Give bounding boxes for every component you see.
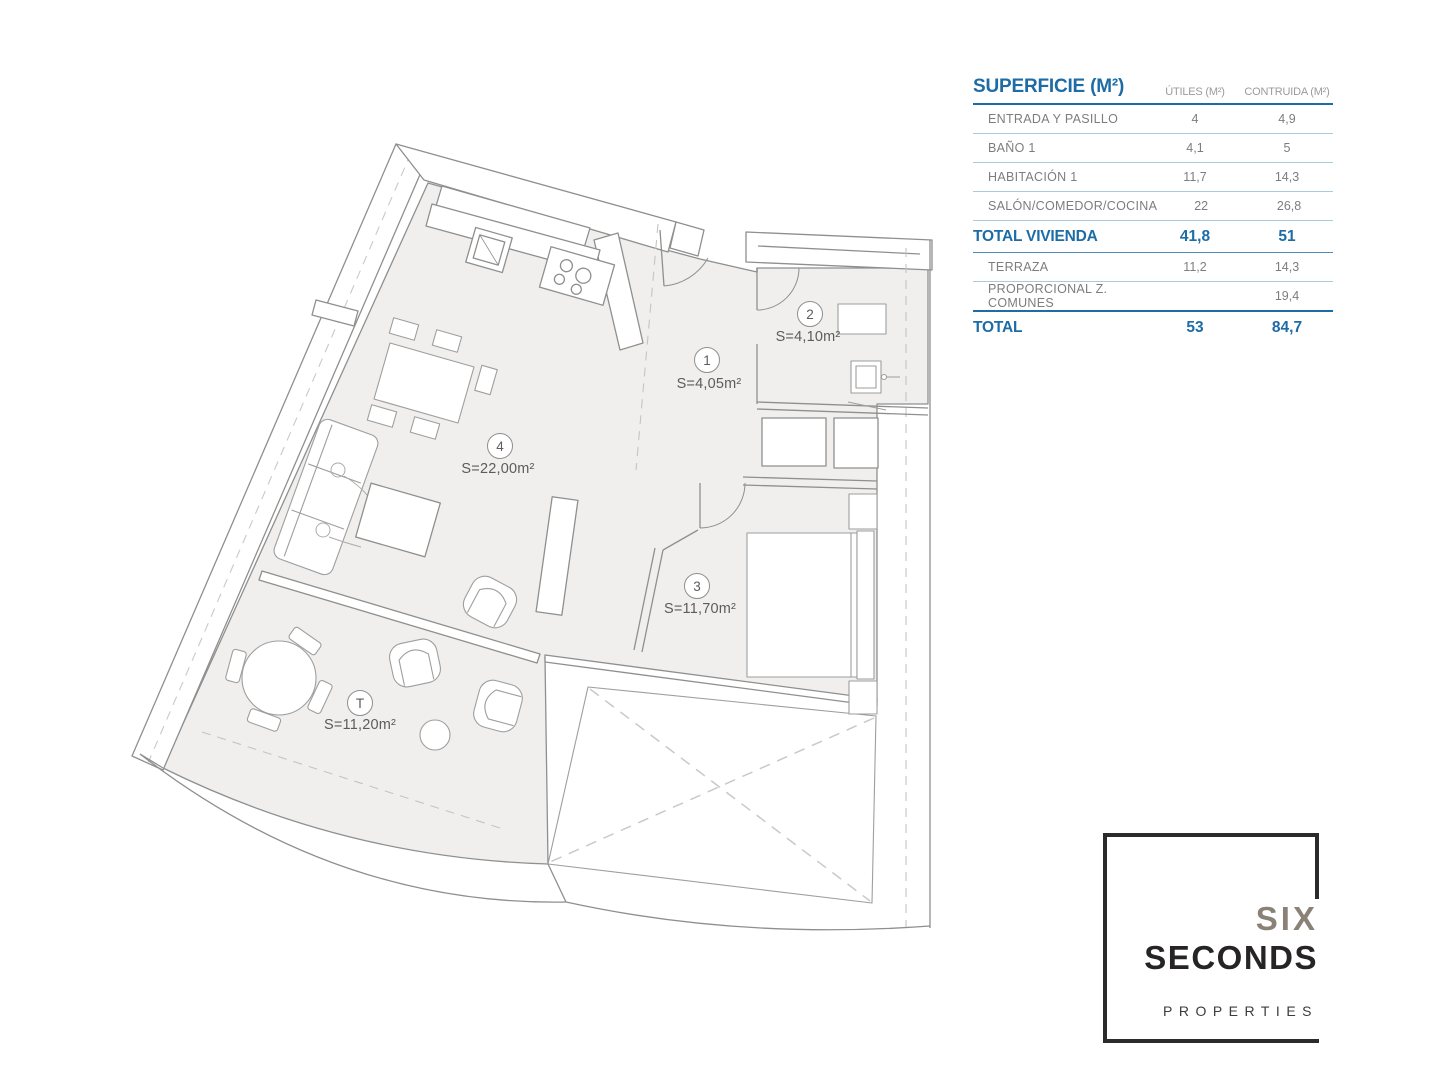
row-label: PROPORCIONAL Z. COMUNES <box>973 282 1149 310</box>
logo-frame-right <box>1315 833 1319 899</box>
table-row: ENTRADA Y PASILLO 4 4,9 <box>973 105 1333 134</box>
column-header-contruida: CONTRUIDA (M²) <box>1241 86 1333 98</box>
row-label: HABITACIÓN 1 <box>973 170 1149 184</box>
room-label-2: 2 <box>797 301 823 327</box>
table-row: TERRAZA 11,2 14,3 <box>973 253 1333 282</box>
row-utiles: 11,2 <box>1149 260 1241 274</box>
table-row-total: TOTAL 53 84,7 <box>973 312 1333 343</box>
table-row: SALÓN/COMEDOR/COCINA 22 26,8 <box>973 192 1333 221</box>
table-row-total-vivienda: TOTAL VIVIENDA 41,8 51 <box>973 221 1333 253</box>
surface-table: SUPERFICIE (M²) ÚTILES (M²) CONTRUIDA (M… <box>973 76 1333 343</box>
row-contruida: 5 <box>1241 141 1333 155</box>
surface-table-title: SUPERFICIE (M²) <box>973 76 1149 98</box>
row-utiles: 22 <box>1157 199 1245 213</box>
table-row: PROPORCIONAL Z. COMUNES 19,4 <box>973 282 1333 312</box>
room-label-4: 4 <box>487 433 513 459</box>
row-contruida: 14,3 <box>1241 170 1333 184</box>
bathroom-top-wall <box>746 232 932 270</box>
logo-text-six: SIX <box>1256 900 1318 938</box>
logo-text-seconds: SECONDS <box>1144 939 1318 977</box>
room-area-1: S=4,05m² <box>644 376 774 392</box>
row-contruida: 51 <box>1241 228 1333 246</box>
six-seconds-logo: SIX SECONDS PROPERTIES <box>1103 833 1319 1043</box>
logo-text-properties: PROPERTIES <box>1163 1003 1318 1019</box>
row-label: TOTAL VIVIENDA <box>973 228 1149 246</box>
row-utiles: 41,8 <box>1149 228 1241 246</box>
room-label-3: 3 <box>684 573 710 599</box>
row-label: TOTAL <box>973 319 1149 337</box>
logo-frame-left <box>1103 833 1107 1043</box>
row-label: SALÓN/COMEDOR/COCINA <box>973 199 1157 213</box>
room-area-T: S=11,20m² <box>295 717 425 733</box>
row-label: TERRAZA <box>973 260 1149 274</box>
row-label: BAÑO 1 <box>973 141 1149 155</box>
row-contruida: 19,4 <box>1241 289 1333 303</box>
row-utiles: 4 <box>1149 112 1241 126</box>
surface-table-header: SUPERFICIE (M²) ÚTILES (M²) CONTRUIDA (M… <box>973 76 1333 105</box>
crossed-area <box>548 687 876 903</box>
room-area-4: S=22,00m² <box>433 461 563 477</box>
room-area-3: S=11,70m² <box>635 601 765 617</box>
row-contruida: 26,8 <box>1245 199 1333 213</box>
row-utiles: 53 <box>1149 319 1241 337</box>
logo-frame-bottom <box>1103 1039 1319 1043</box>
row-utiles: 11,7 <box>1149 170 1241 184</box>
room-area-2: S=4,10m² <box>743 329 873 345</box>
column-header-utiles: ÚTILES (M²) <box>1149 86 1241 98</box>
row-utiles: 4,1 <box>1149 141 1241 155</box>
table-row: BAÑO 1 4,1 5 <box>973 134 1333 163</box>
row-contruida: 4,9 <box>1241 112 1333 126</box>
logo-frame-top <box>1103 833 1319 837</box>
room-label-1: 1 <box>694 347 720 373</box>
row-label: ENTRADA Y PASILLO <box>973 112 1149 126</box>
flyer-page: 1 S=4,05m² 2 S=4,10m² 3 S=11,70m² 4 S=22… <box>0 0 1440 1080</box>
row-contruida: 84,7 <box>1241 319 1333 337</box>
room-label-T: T <box>347 690 373 716</box>
row-contruida: 14,3 <box>1241 260 1333 274</box>
table-row: HABITACIÓN 1 11,7 14,3 <box>973 163 1333 192</box>
closets <box>762 418 878 468</box>
